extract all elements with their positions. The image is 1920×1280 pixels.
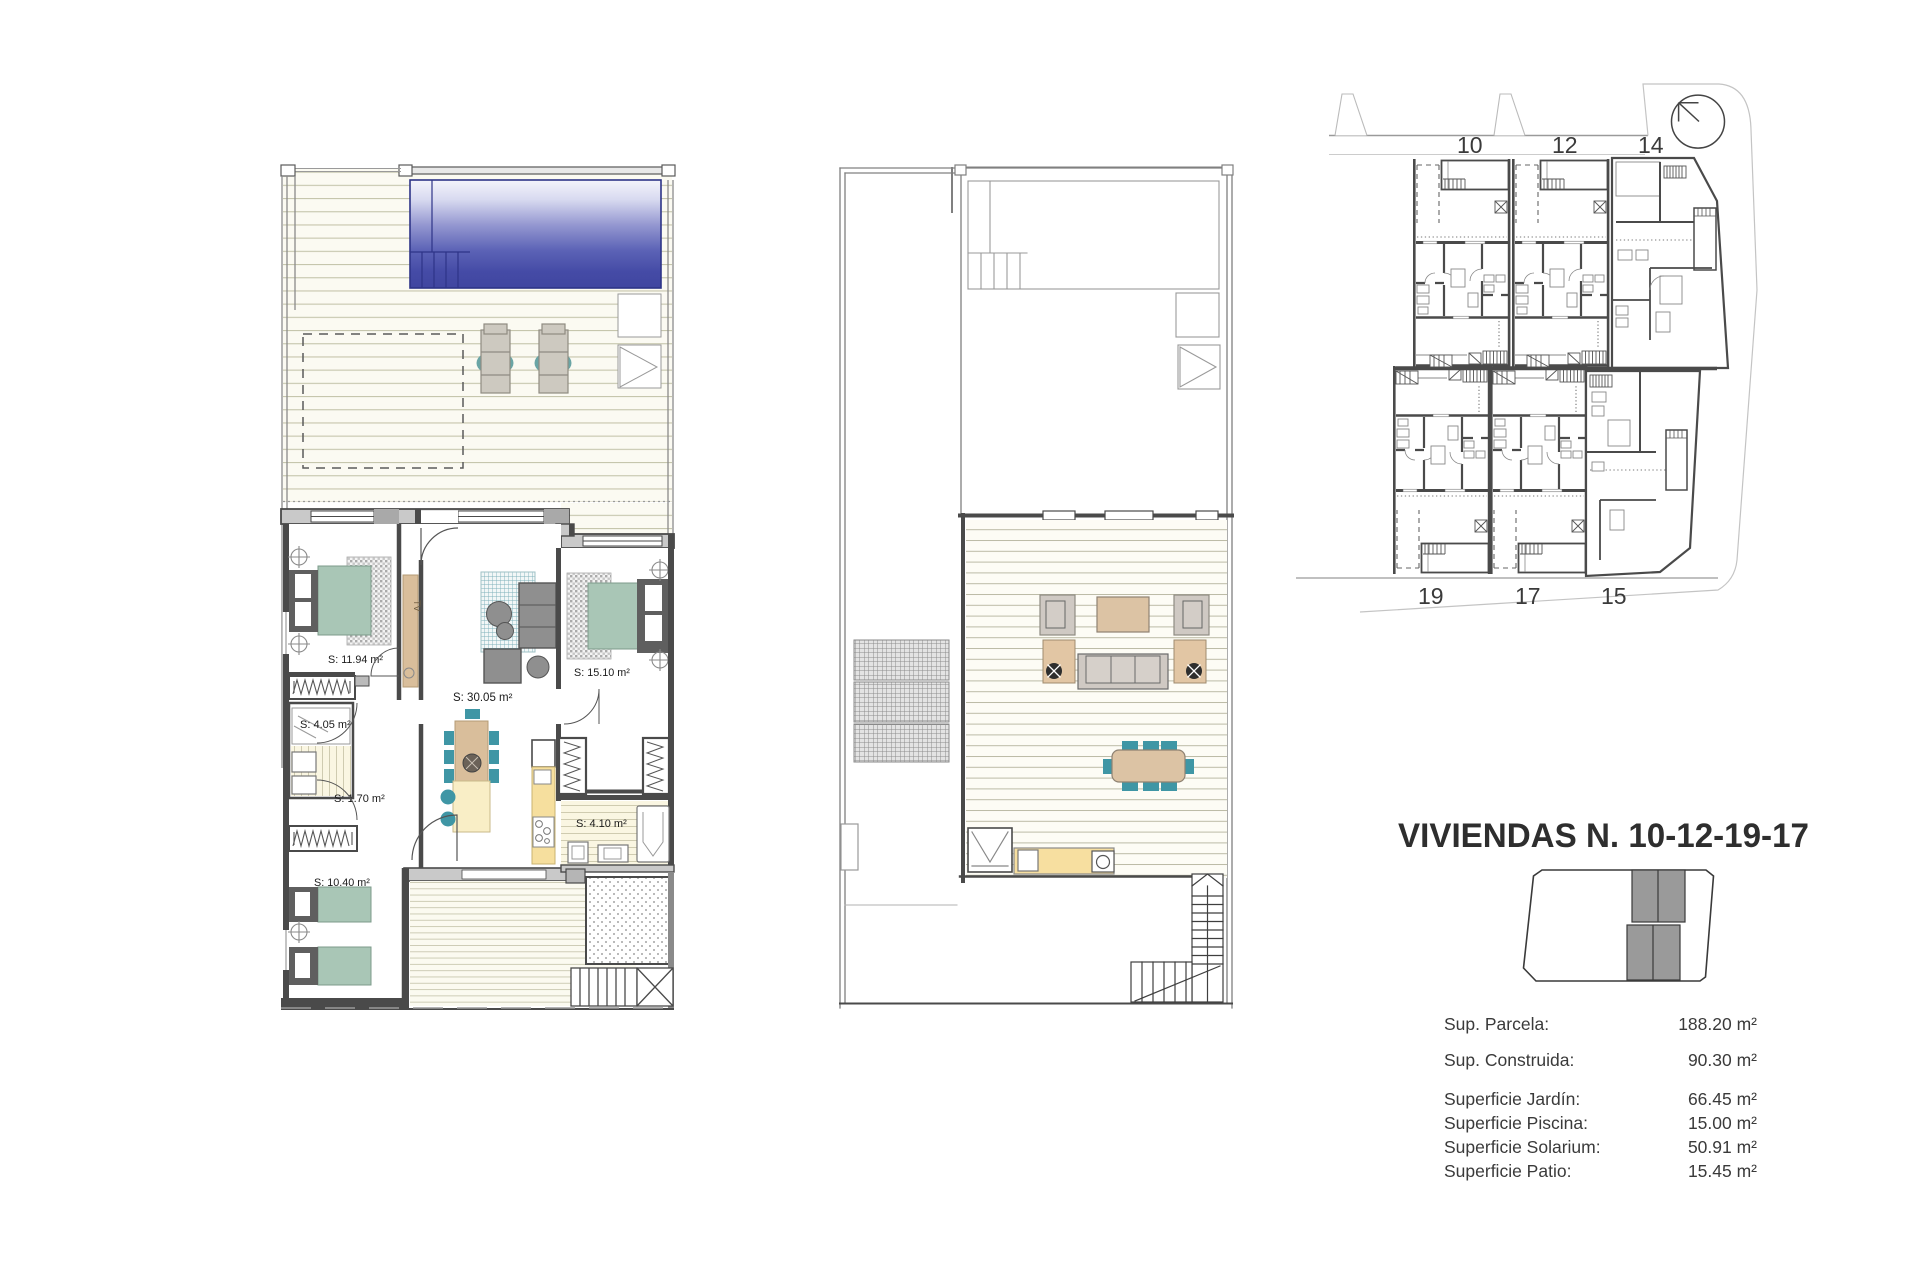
svg-text:50.91 m²: 50.91 m² xyxy=(1688,1137,1757,1157)
svg-text:19: 19 xyxy=(1418,583,1444,609)
svg-text:S: 11.94 m²: S: 11.94 m² xyxy=(328,654,383,666)
svg-text:90.30 m²: 90.30 m² xyxy=(1688,1050,1757,1070)
svg-text:66.45 m²: 66.45 m² xyxy=(1688,1089,1757,1109)
svg-text:Superficie Piscina:: Superficie Piscina: xyxy=(1444,1113,1588,1133)
svg-text:Sup. Construida:: Sup. Construida: xyxy=(1444,1050,1574,1070)
svg-text:Superficie Patio:: Superficie Patio: xyxy=(1444,1161,1571,1181)
svg-text:S: 1.70 m²: S: 1.70 m² xyxy=(334,793,385,805)
svg-text:VIVIENDAS N. 10-12-19-17: VIVIENDAS N. 10-12-19-17 xyxy=(1398,817,1809,855)
svg-text:Sup. Parcela:: Sup. Parcela: xyxy=(1444,1014,1549,1034)
svg-text:Superficie Solarium:: Superficie Solarium: xyxy=(1444,1137,1601,1157)
svg-text:S: 4.10 m²: S: 4.10 m² xyxy=(576,818,627,830)
svg-text:S: 15.10 m²: S: 15.10 m² xyxy=(574,667,630,679)
svg-text:S: 30.05 m²: S: 30.05 m² xyxy=(453,692,513,704)
svg-text:S: 4.05 m²: S: 4.05 m² xyxy=(300,719,351,731)
svg-text:15.00 m²: 15.00 m² xyxy=(1688,1113,1757,1133)
svg-text:12: 12 xyxy=(1552,132,1578,158)
svg-text:15: 15 xyxy=(1601,583,1627,609)
svg-text:10: 10 xyxy=(1457,132,1483,158)
svg-text:TV: TV xyxy=(412,600,422,612)
svg-text:17: 17 xyxy=(1515,583,1541,609)
svg-text:Superficie Jardín:: Superficie Jardín: xyxy=(1444,1089,1580,1109)
svg-text:15.45 m²: 15.45 m² xyxy=(1688,1161,1757,1181)
svg-text:188.20 m²: 188.20 m² xyxy=(1678,1014,1757,1034)
svg-text:14: 14 xyxy=(1638,132,1664,158)
